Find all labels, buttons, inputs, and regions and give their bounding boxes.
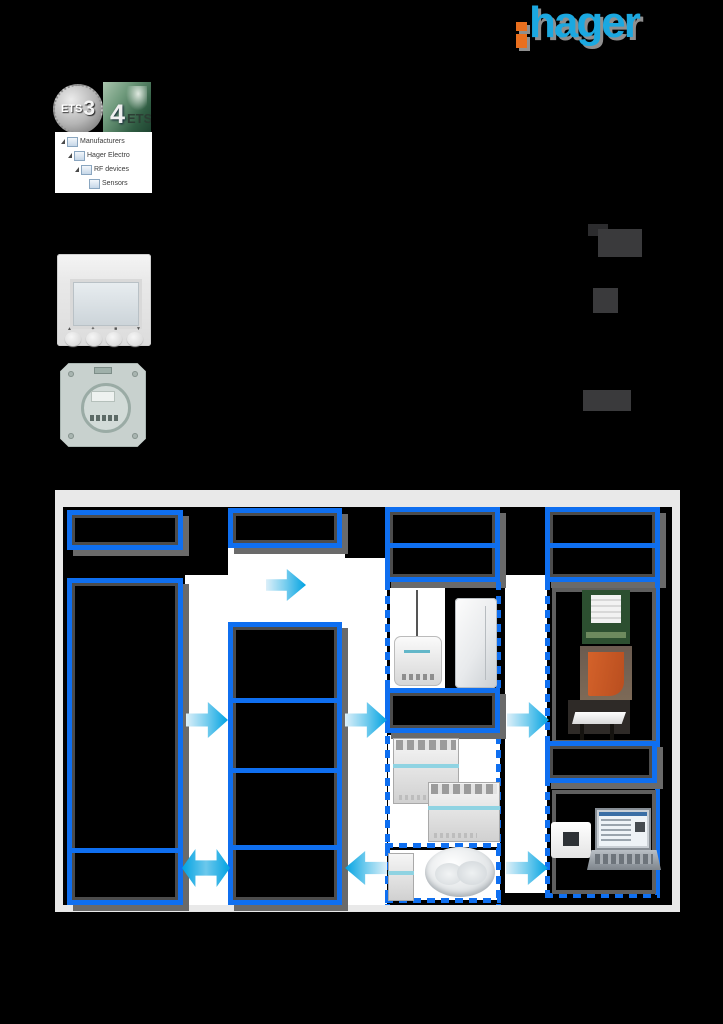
folder-icon	[74, 151, 85, 161]
diagram-col2-header-box	[228, 508, 342, 548]
ets3-badge-icon: ETS 3	[53, 84, 103, 134]
ets4-badge-label: ETS	[127, 111, 151, 126]
awning-photo	[580, 646, 632, 700]
tree-item-hager-electro: Hager Electro	[68, 149, 130, 162]
diagram-col3-dashed-divider	[385, 843, 501, 848]
table-photo	[568, 700, 630, 734]
diagram-col4-label-box	[545, 741, 657, 783]
thermostat-display	[70, 279, 142, 329]
folder-icon	[89, 179, 100, 189]
radio-module-antenna	[416, 590, 418, 638]
laptop-base	[587, 850, 661, 870]
diagram-col3-header-box	[385, 507, 500, 582]
tree-item-sensors: Sensors	[89, 177, 128, 190]
insert-label	[91, 391, 115, 402]
diagram-col2-stack-box	[228, 622, 342, 905]
tree-item-label: RF devices	[94, 166, 129, 173]
thermostat-button	[86, 332, 102, 346]
pictogram-icon	[598, 229, 642, 257]
flush-mount-insert-photo	[60, 363, 146, 447]
expand-triangle-icon	[61, 139, 65, 144]
tree-item-label: Hager Electro	[87, 152, 130, 159]
expand-triangle-icon	[75, 167, 79, 172]
wall-mounted-transmitter	[455, 598, 497, 688]
ets3-badge-label: ETS	[61, 103, 82, 115]
pictogram-icon	[583, 390, 631, 411]
roller-shutter-window-photo	[582, 590, 630, 644]
expand-triangle-icon	[68, 153, 72, 158]
system-diagram	[55, 490, 680, 912]
pictogram-icon	[593, 288, 618, 313]
wall-thermostat-photo: ▲✦■▼	[57, 254, 151, 346]
ets-catalog-tree: Manufacturers Hager Electro RF devices S…	[55, 132, 152, 193]
folder-icon	[67, 137, 78, 147]
diagram-col4-header-box	[545, 507, 660, 582]
diagram-col4-dashed-left	[545, 582, 550, 895]
tree-item-label: Manufacturers	[80, 138, 125, 145]
din-rail-actuator-wide	[428, 782, 500, 842]
tree-item-rf-devices: RF devices	[75, 163, 129, 176]
diagram-col1-divider	[72, 848, 178, 853]
thermostat-button	[65, 332, 81, 346]
ets4-badge-icon: 4 ETS	[103, 82, 151, 132]
ets3-badge-version: 3	[83, 97, 95, 121]
ceiling-motion-detector	[425, 847, 495, 897]
laptop-with-ets-software	[595, 808, 651, 850]
hager-logo: hager	[512, 6, 672, 58]
din-rail-module	[388, 853, 414, 901]
tree-item-manufacturers: Manufacturers	[61, 135, 125, 148]
ets4-runner-figure-icon	[125, 86, 147, 112]
radio-module-with-antenna	[394, 636, 442, 686]
ets4-badge-version: 4	[110, 99, 125, 130]
thermostat-button	[127, 332, 143, 346]
document-page: hager ETS 3 4 ETS Manufacturers Hager El…	[0, 0, 723, 1024]
diagram-col1-header-box	[67, 510, 183, 550]
hager-logo-mark-icon	[516, 22, 527, 48]
folder-icon	[81, 165, 92, 175]
thermostat-button	[106, 332, 122, 346]
diagram-col3-label-box	[385, 688, 500, 733]
hager-logo-text: hager	[529, 0, 639, 48]
insert-connector	[94, 367, 112, 374]
tree-item-label: Sensors	[102, 180, 128, 187]
diagram-col1-main-box	[67, 578, 183, 905]
wall-switch	[551, 822, 591, 858]
